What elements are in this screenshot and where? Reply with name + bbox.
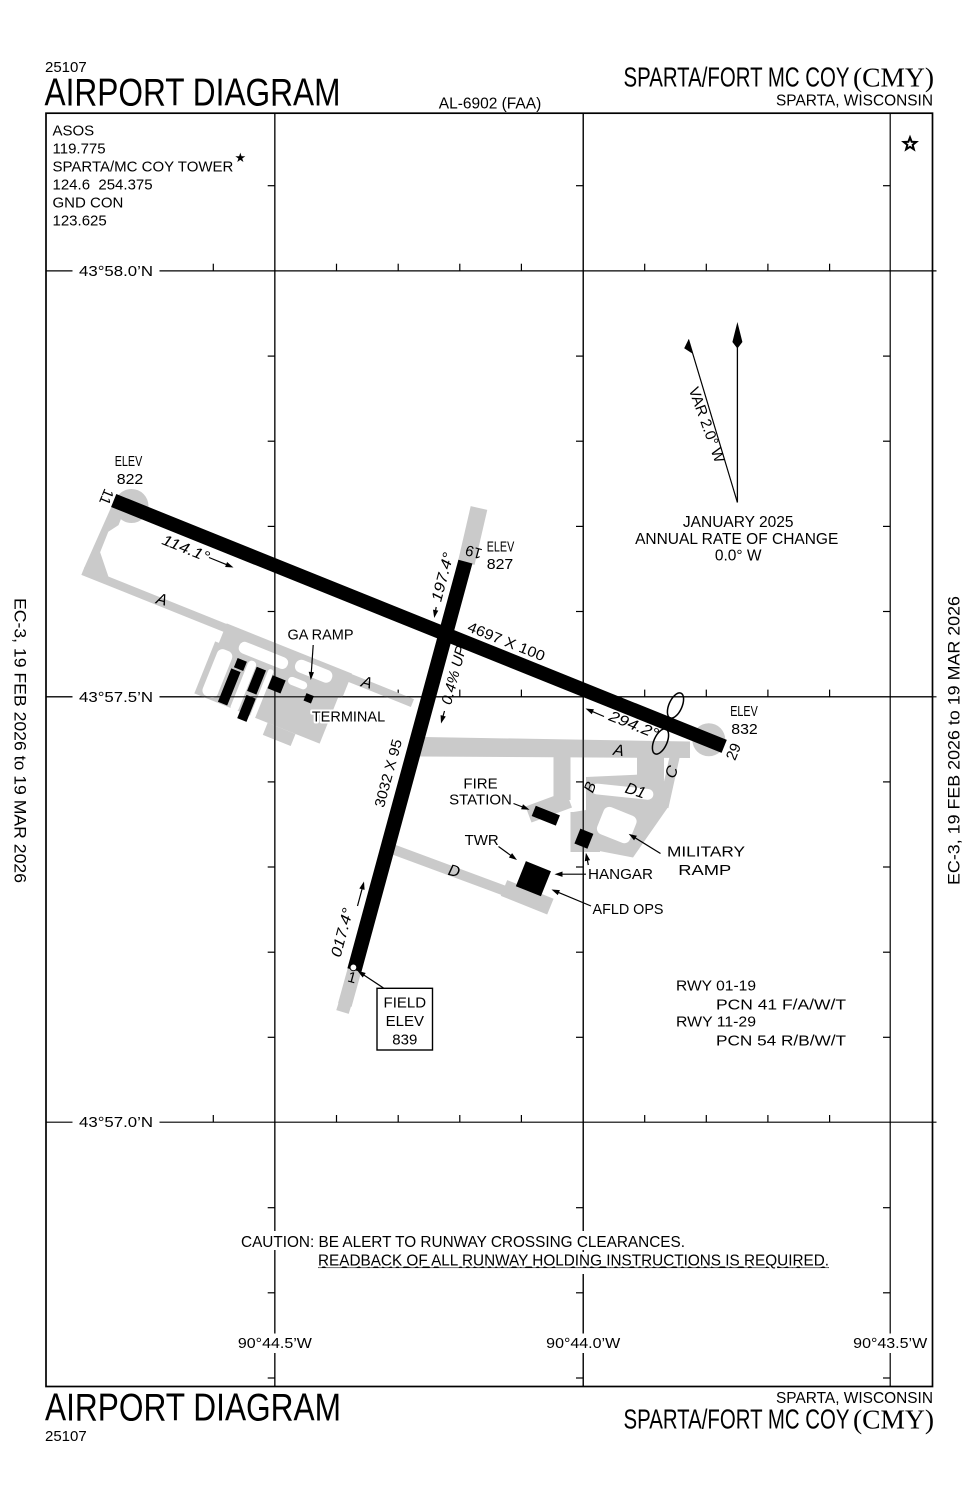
svg-text:AFLD OPS: AFLD OPS	[593, 901, 664, 918]
svg-text:0.0° W: 0.0° W	[715, 548, 762, 565]
svg-text:TWR: TWR	[465, 832, 499, 849]
svg-text:TERMINAL: TERMINAL	[312, 710, 385, 726]
svg-text:STATION: STATION	[449, 792, 512, 809]
svg-text:RAMP: RAMP	[678, 862, 731, 879]
svg-text:43°57.0’N: 43°57.0’N	[79, 1115, 153, 1131]
svg-text:832: 832	[731, 722, 758, 738]
svg-text:ELEV: ELEV	[115, 454, 143, 470]
svg-text:SPARTA/FORT MC COY: SPARTA/FORT MC COY	[624, 1404, 850, 1435]
svg-text:EC-3, 19 FEB 2026 to 19 MAR: EC-3, 19 FEB 2026 to 19 MAR 2026	[11, 598, 30, 883]
svg-text:ELEV: ELEV	[487, 540, 515, 556]
svg-text:JANUARY 2025: JANUARY 2025	[683, 514, 794, 531]
svg-text:ASOS: ASOS	[53, 123, 95, 140]
svg-text:124.6 254.375: 124.6 254.375	[53, 177, 153, 194]
svg-text:RWY 11-29: RWY 11-29	[676, 1015, 756, 1031]
svg-text:READBACK OF ALL RUNWAY HOLDING: READBACK OF ALL RUNWAY HOLDING INSTRUCTI…	[318, 1253, 829, 1270]
svg-text:AIRPORT DIAGRAM: AIRPORT DIAGRAM	[45, 72, 341, 115]
svg-text:GA RAMP: GA RAMP	[287, 628, 353, 644]
svg-text:A: A	[611, 742, 625, 760]
svg-text:EC-3, 19 FEB 2026 to 19 MAR: EC-3, 19 FEB 2026 to 19 MAR 2026	[945, 596, 964, 885]
svg-text:CAUTION: BE ALERT TO RUNWAY CR: CAUTION: BE ALERT TO RUNWAY CROSSING CLE…	[241, 1234, 685, 1251]
svg-text:90°44.0’W: 90°44.0’W	[546, 1336, 620, 1352]
svg-text:GND CON: GND CON	[53, 195, 124, 212]
svg-text:43°58.0’N: 43°58.0’N	[79, 264, 153, 280]
svg-text:★: ★	[235, 150, 247, 165]
svg-text:PCN 54 R/B/W/T: PCN 54 R/B/W/T	[716, 1034, 846, 1050]
svg-text:HANGAR: HANGAR	[588, 866, 653, 883]
svg-text:PCN 41 F/A/W/T: PCN 41 F/A/W/T	[716, 998, 846, 1014]
svg-text:ELEV: ELEV	[730, 704, 758, 720]
svg-text:RWY 01-19: RWY 01-19	[676, 979, 756, 995]
svg-text:25107: 25107	[45, 1428, 87, 1445]
svg-text:827: 827	[487, 557, 514, 573]
svg-text:90°44.5’W: 90°44.5’W	[238, 1336, 312, 1352]
svg-text:SPARTA/MC COY TOWER: SPARTA/MC COY TOWER	[53, 159, 234, 176]
svg-text:(CMY): (CMY)	[853, 1404, 934, 1435]
svg-text:AIRPORT DIAGRAM: AIRPORT DIAGRAM	[45, 1387, 341, 1430]
svg-text:119.775: 119.775	[53, 141, 106, 158]
svg-text:(CMY): (CMY)	[853, 62, 934, 93]
svg-text:SPARTA/FORT MC COY: SPARTA/FORT MC COY	[624, 62, 850, 93]
svg-text:123.625: 123.625	[53, 213, 107, 230]
svg-text:90°43.5’W: 90°43.5’W	[853, 1336, 927, 1352]
svg-text:822: 822	[117, 472, 144, 488]
svg-text:ELEV: ELEV	[386, 1013, 424, 1030]
svg-text:839: 839	[392, 1032, 417, 1049]
svg-text:ANNUAL RATE OF CHANGE: ANNUAL RATE OF CHANGE	[635, 531, 838, 548]
svg-text:SPARTA, WISCONSIN: SPARTA, WISCONSIN	[776, 93, 933, 110]
svg-text:MILITARY: MILITARY	[667, 844, 745, 861]
svg-text:FIELD: FIELD	[384, 995, 427, 1012]
svg-text:AL-6902 (FAA): AL-6902 (FAA)	[439, 96, 542, 113]
svg-text:43°57.5’N: 43°57.5’N	[79, 690, 153, 706]
svg-text:FIRE: FIRE	[463, 776, 497, 793]
